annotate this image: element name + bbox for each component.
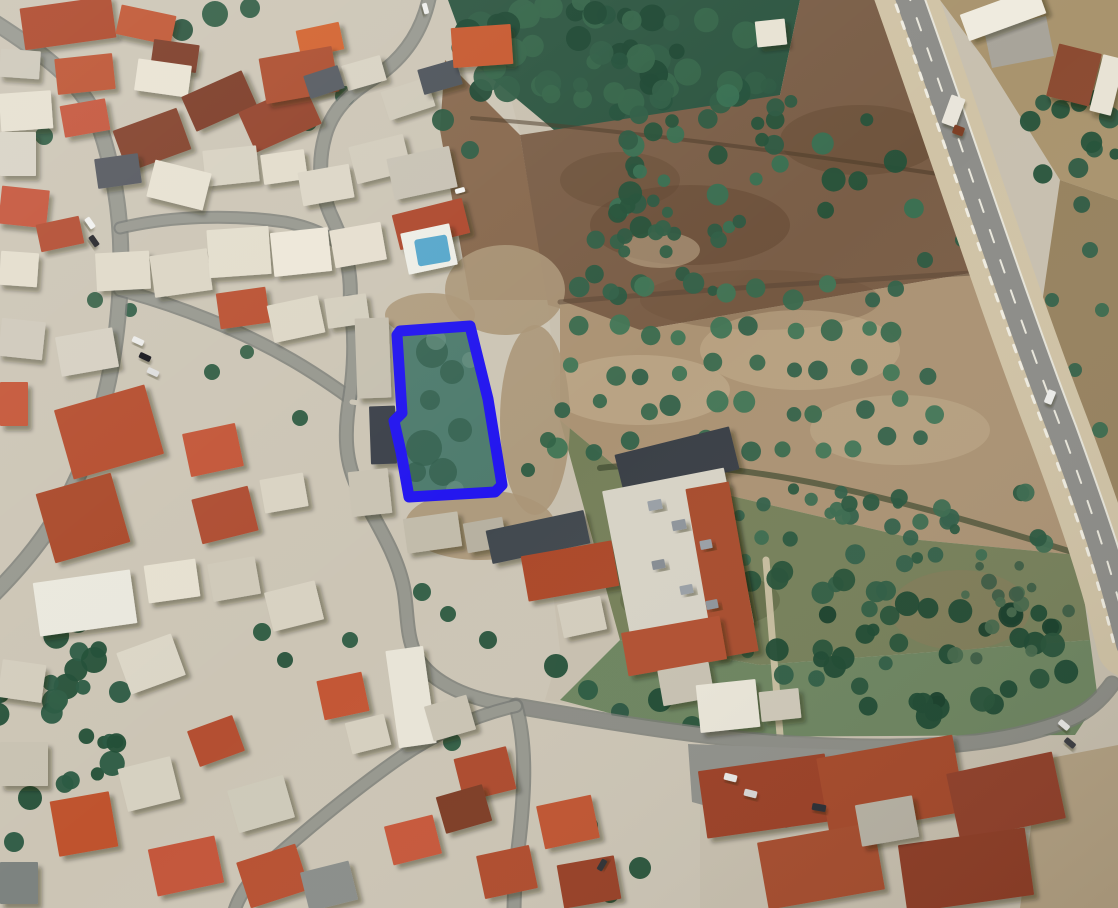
tree — [817, 202, 834, 219]
tree — [1068, 158, 1088, 178]
olive-tree — [816, 443, 832, 459]
tree — [1029, 529, 1046, 546]
building-roof — [0, 659, 46, 703]
tree — [204, 364, 220, 380]
olive-tree — [808, 361, 828, 381]
olive-tree — [738, 316, 758, 336]
tree — [774, 665, 794, 685]
tree — [479, 631, 497, 649]
tree — [707, 184, 729, 206]
tree — [822, 168, 846, 192]
tree — [1082, 242, 1098, 258]
tree — [521, 463, 535, 477]
tree — [1054, 660, 1078, 684]
tree — [1092, 422, 1108, 438]
building-roof — [355, 317, 392, 398]
building-roof — [206, 226, 271, 278]
tree — [863, 494, 880, 511]
tree — [540, 432, 556, 448]
tree — [805, 493, 818, 506]
tree — [648, 224, 664, 240]
tree — [43, 675, 59, 691]
olive-tree — [703, 353, 722, 372]
tree — [896, 555, 913, 572]
tree — [1095, 303, 1109, 317]
olive-tree — [788, 323, 805, 340]
tree — [639, 5, 666, 32]
tree — [860, 113, 873, 126]
tree — [240, 345, 254, 359]
tree — [566, 26, 591, 51]
soil-patch — [500, 325, 570, 515]
olive-tree — [563, 357, 578, 372]
tree — [1035, 95, 1051, 111]
tree — [916, 703, 942, 729]
building-roof — [149, 248, 212, 298]
tree — [1030, 605, 1047, 622]
tree — [35, 127, 53, 145]
tree — [856, 625, 875, 644]
building-roof — [0, 186, 50, 229]
tree — [590, 41, 614, 65]
tree — [708, 286, 718, 296]
tree — [1051, 100, 1070, 119]
tree — [667, 125, 685, 143]
tree — [824, 507, 836, 519]
tree — [756, 497, 770, 511]
satellite-map-screenshot — [0, 0, 1118, 908]
tree — [848, 171, 867, 190]
tree — [79, 728, 95, 744]
tree — [652, 80, 674, 102]
olive-tree — [707, 390, 729, 412]
tree — [751, 117, 764, 130]
tree — [933, 499, 951, 517]
olive-tree — [862, 321, 877, 336]
tree — [879, 656, 893, 670]
olive-tree — [741, 442, 761, 462]
tree — [832, 647, 855, 670]
parcel-vegetation — [420, 390, 440, 410]
tree — [587, 231, 605, 249]
olive-tree — [717, 283, 736, 302]
tree — [1025, 645, 1037, 657]
tree — [808, 670, 825, 687]
building-roof — [50, 791, 119, 857]
building-roof — [0, 132, 36, 176]
tree — [911, 552, 923, 564]
olive-tree — [603, 283, 620, 300]
tree — [626, 44, 655, 73]
olive-tree — [671, 330, 686, 345]
tree — [611, 53, 628, 70]
tree — [859, 697, 878, 716]
olive-tree — [569, 277, 590, 298]
tree — [754, 530, 769, 545]
tree — [573, 77, 588, 92]
olive-tree — [586, 444, 603, 461]
tree — [18, 786, 42, 810]
tree — [785, 95, 798, 108]
olive-tree — [733, 391, 755, 413]
building-roof — [54, 53, 115, 95]
tree — [884, 518, 900, 534]
olive-tree — [672, 366, 687, 381]
tree — [1027, 583, 1037, 593]
parcel-vegetation — [448, 418, 472, 442]
building-roof — [216, 287, 271, 330]
tree — [432, 109, 454, 131]
tree — [903, 530, 918, 545]
tree — [81, 647, 107, 673]
tree — [440, 606, 456, 622]
olive-tree — [851, 359, 868, 376]
olive-tree — [606, 366, 626, 386]
tree — [985, 620, 1000, 635]
tree — [202, 1, 228, 27]
tree — [950, 524, 960, 534]
tree — [1009, 628, 1029, 648]
tree — [750, 173, 763, 186]
tree — [633, 165, 647, 179]
tree — [845, 544, 865, 564]
tree — [494, 76, 520, 102]
olive-tree — [710, 317, 732, 339]
tree — [755, 133, 769, 147]
olive-tree — [593, 394, 607, 408]
building-roof — [0, 251, 39, 288]
building-roof — [270, 227, 332, 277]
tree — [1000, 680, 1018, 698]
tree — [1014, 561, 1024, 571]
olive-tree — [610, 314, 630, 334]
tree — [660, 245, 673, 258]
tree — [884, 150, 907, 173]
olive-tree — [819, 275, 836, 292]
olive-tree — [621, 431, 640, 450]
olive-tree — [856, 400, 875, 419]
building-roof — [348, 468, 392, 517]
tree — [658, 174, 671, 187]
olive-tree — [878, 427, 897, 446]
tree — [1073, 196, 1090, 213]
tree — [663, 15, 679, 31]
tree — [622, 11, 642, 31]
tree — [975, 562, 984, 571]
tree — [578, 680, 598, 700]
tree — [573, 90, 592, 109]
tree — [766, 638, 789, 661]
tree — [904, 199, 924, 219]
building-roof — [0, 318, 46, 360]
olive-tree — [865, 292, 880, 307]
building-roof — [94, 153, 142, 189]
tree — [819, 606, 836, 623]
building-roof — [144, 559, 201, 604]
tree — [895, 591, 920, 616]
tree — [716, 84, 739, 107]
tree — [698, 109, 718, 129]
building-roof — [0, 49, 41, 80]
tree — [947, 647, 963, 663]
tree — [761, 78, 777, 94]
tree — [912, 514, 928, 530]
tree — [812, 582, 834, 604]
olive-tree — [804, 405, 822, 423]
tree — [788, 483, 799, 494]
tree — [342, 632, 358, 648]
tree — [851, 678, 868, 695]
tree — [981, 574, 997, 590]
tree — [253, 623, 271, 641]
building-roof — [0, 382, 28, 426]
tree — [461, 141, 479, 159]
tree — [889, 634, 908, 653]
olive-tree — [883, 364, 900, 381]
building-roof — [202, 145, 259, 186]
building-roof — [451, 24, 514, 68]
olive-tree — [632, 369, 649, 386]
tree — [995, 597, 1005, 607]
olive-tree — [787, 363, 802, 378]
tree — [629, 857, 651, 879]
building-roof — [696, 679, 761, 733]
tree — [56, 775, 74, 793]
tree — [812, 132, 834, 154]
olive-tree — [844, 440, 861, 457]
tree — [961, 590, 970, 599]
tree — [772, 155, 789, 172]
tree — [928, 547, 944, 563]
building-roof — [755, 19, 788, 48]
olive-tree — [787, 407, 802, 422]
building-roof — [0, 862, 38, 904]
tree — [674, 58, 701, 85]
olive-tree — [919, 368, 936, 385]
building-roof — [95, 251, 151, 292]
building-roof — [0, 742, 48, 786]
tree — [918, 598, 939, 619]
tree — [542, 85, 561, 104]
tree — [813, 651, 829, 667]
olive-tree — [821, 319, 843, 341]
olive-tree — [892, 390, 909, 407]
tree — [4, 832, 24, 852]
tree — [970, 687, 995, 712]
tree — [1081, 132, 1102, 153]
tree — [603, 82, 625, 104]
tree — [733, 215, 746, 228]
tree — [841, 496, 857, 512]
tree — [710, 231, 727, 248]
tree — [277, 652, 293, 668]
olive-tree — [746, 278, 765, 297]
tree — [662, 207, 673, 218]
tree — [608, 204, 627, 223]
tree — [1020, 111, 1041, 132]
tree — [771, 561, 793, 583]
tree — [1033, 164, 1052, 183]
tree — [970, 652, 982, 664]
tree — [917, 252, 933, 268]
tree — [694, 8, 719, 33]
tree — [644, 122, 663, 141]
tree — [1062, 605, 1075, 618]
tree — [48, 690, 68, 710]
olive-tree — [683, 272, 704, 293]
tree — [1040, 633, 1065, 658]
tree — [76, 680, 91, 695]
satellite-map-view[interactable] — [0, 0, 1118, 908]
tree — [87, 292, 103, 308]
tree — [669, 44, 685, 60]
tree — [413, 583, 431, 601]
tree — [861, 601, 877, 617]
olive-tree — [913, 430, 928, 445]
tree — [583, 1, 607, 25]
tree — [833, 569, 856, 592]
tree — [544, 654, 568, 678]
tree — [876, 581, 896, 601]
tree — [708, 145, 727, 164]
swimming-pool — [414, 234, 451, 266]
tree — [1030, 669, 1050, 689]
tree — [766, 98, 784, 116]
tree — [976, 549, 988, 561]
olive-tree — [783, 289, 804, 310]
tree — [1017, 484, 1035, 502]
building-roof — [759, 688, 802, 722]
olive-tree — [660, 395, 681, 416]
tree — [783, 531, 798, 546]
olive-tree — [749, 355, 765, 371]
olive-tree — [641, 403, 658, 420]
tree — [948, 599, 972, 623]
tree — [107, 733, 127, 753]
tree — [618, 130, 638, 150]
parcel-vegetation — [440, 360, 464, 384]
tree — [891, 489, 908, 506]
tree — [630, 106, 649, 125]
tree — [1009, 587, 1024, 602]
olive-tree — [888, 281, 904, 297]
olive-tree — [641, 326, 660, 345]
tree — [585, 265, 604, 284]
olive-tree — [775, 441, 791, 457]
tree — [1045, 293, 1059, 307]
building-roof — [0, 90, 53, 132]
tree — [617, 228, 633, 244]
tree — [647, 195, 660, 208]
tree — [665, 114, 679, 128]
olive-tree — [554, 402, 570, 418]
olive-tree — [569, 316, 589, 336]
olive-tree — [634, 277, 654, 297]
olive-tree — [881, 322, 902, 343]
tree — [292, 410, 308, 426]
olive-tree — [925, 405, 944, 424]
